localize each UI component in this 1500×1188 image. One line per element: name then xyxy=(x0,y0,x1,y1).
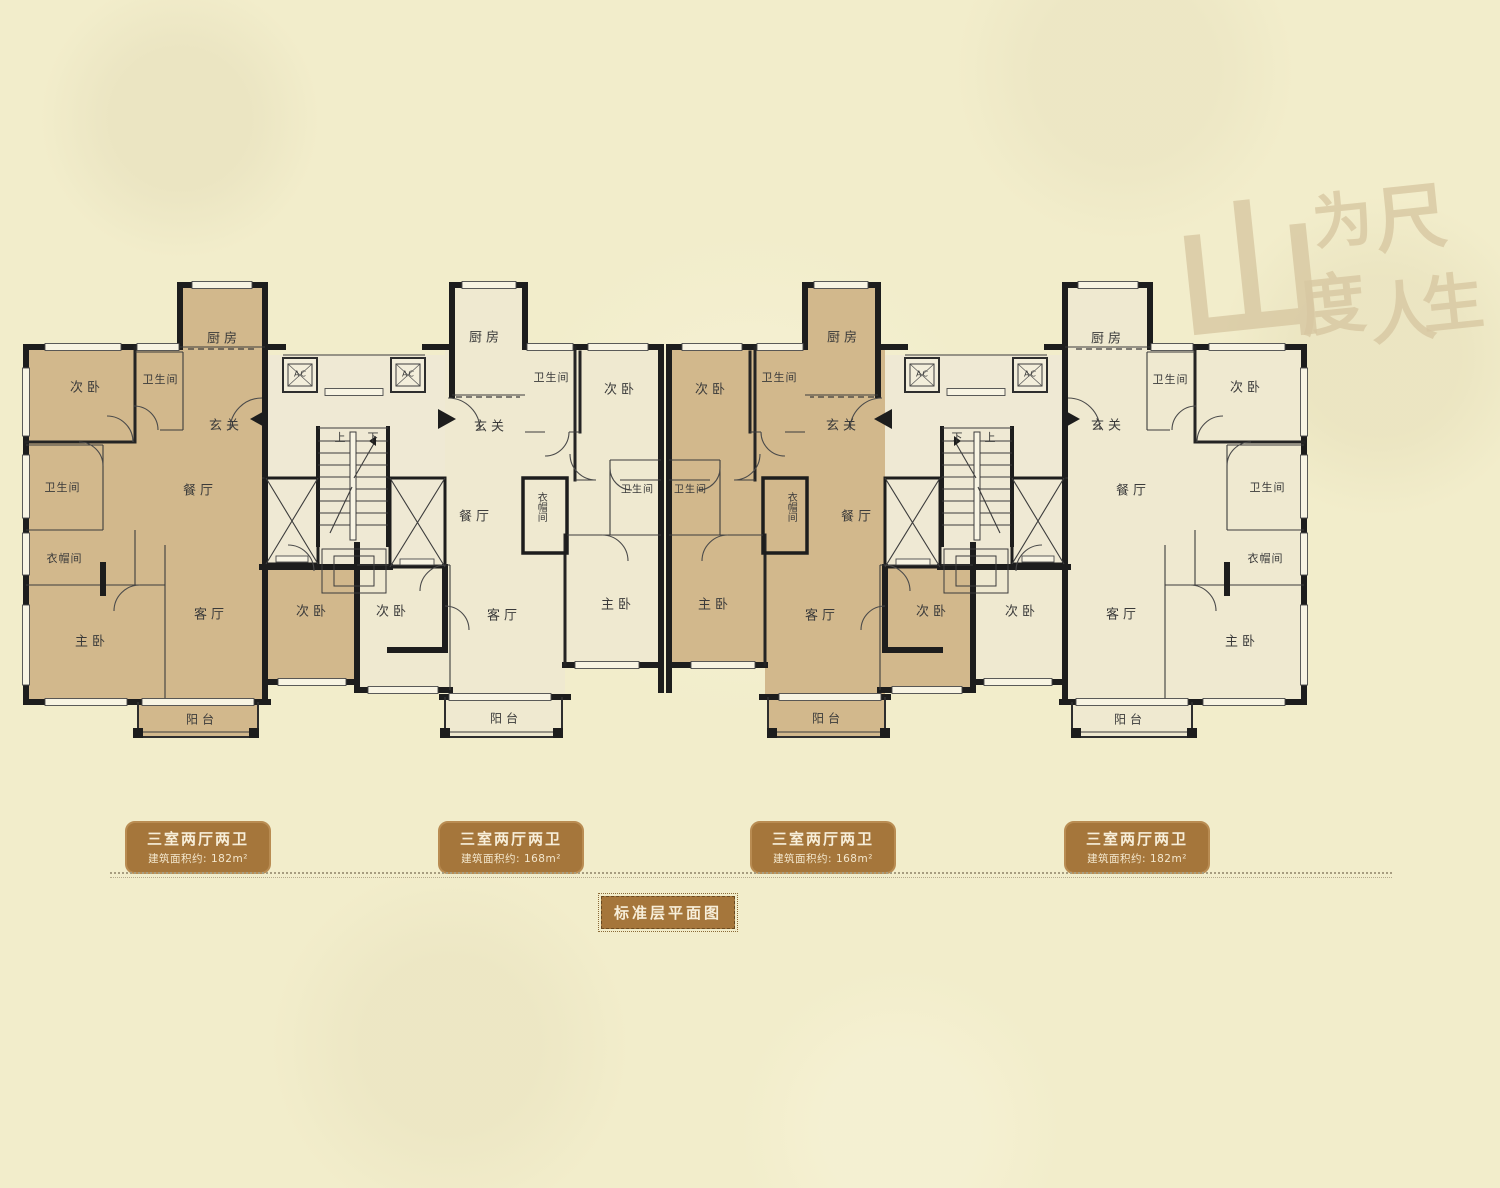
unit-type-label: 三室两厅两卫 xyxy=(440,828,582,849)
page: 山为尺度人生 次卧卫生间厨房玄关餐厅卫生间衣帽间主卧客厅次卧阳台上下ACAC次卧… xyxy=(0,0,1500,1188)
unit-type-label: 三室两厅两卫 xyxy=(1066,828,1208,849)
unit-area-label: 建筑面积约: 168m² xyxy=(752,851,894,866)
unit-area-label: 建筑面积约: 182m² xyxy=(1066,851,1208,866)
unit-type-badge-3: 三室两厅两卫 建筑面积约: 168m² xyxy=(750,821,896,874)
divider xyxy=(110,872,1392,878)
unit-type-label: 三室两厅两卫 xyxy=(127,828,269,849)
floorplan-svg xyxy=(0,0,1500,1188)
page-title: 标准层平面图 xyxy=(601,896,735,929)
unit-area-label: 建筑面积约: 168m² xyxy=(440,851,582,866)
unit-type-badge-1: 三室两厅两卫 建筑面积约: 182m² xyxy=(125,821,271,874)
unit-type-label: 三室两厅两卫 xyxy=(752,828,894,849)
unit-type-badge-4: 三室两厅两卫 建筑面积约: 182m² xyxy=(1064,821,1210,874)
building-right-half xyxy=(669,282,1308,739)
unit-type-badge-2: 三室两厅两卫 建筑面积约: 168m² xyxy=(438,821,584,874)
unit-area-label: 建筑面积约: 182m² xyxy=(127,851,269,866)
building-left-half xyxy=(23,282,662,739)
